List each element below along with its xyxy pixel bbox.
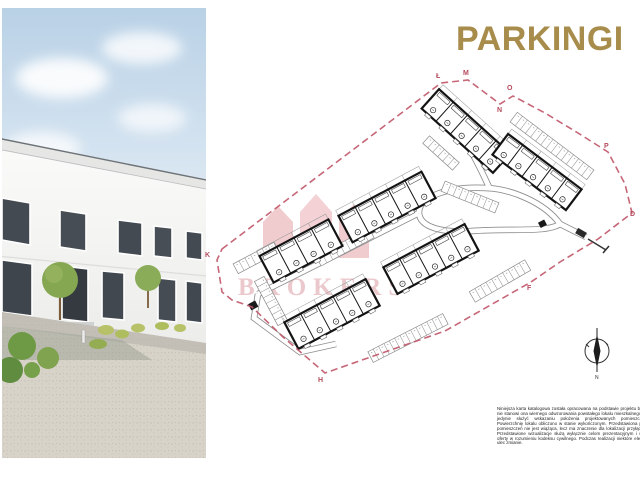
- boundary-point-label: N: [497, 107, 502, 114]
- boundary-point-label: P: [604, 143, 609, 150]
- boundary-point-label: M: [463, 70, 469, 77]
- compass-icon: N: [585, 328, 609, 381]
- boundary-point-label: Ł: [436, 73, 441, 80]
- boundary-point-label: D: [630, 211, 635, 218]
- boundary-point-label: K: [205, 252, 210, 259]
- disclaimer-text: Niniejsza karta katalogowa została oprac…: [497, 407, 640, 446]
- boundary-point-label: H: [318, 377, 323, 384]
- boundary-point-label: O: [507, 85, 513, 92]
- page: { "title": "PARKINGI", "plan": { "bounda…: [0, 0, 640, 480]
- compass-north-label: N: [595, 375, 599, 381]
- boundary-point-label: F: [527, 285, 532, 292]
